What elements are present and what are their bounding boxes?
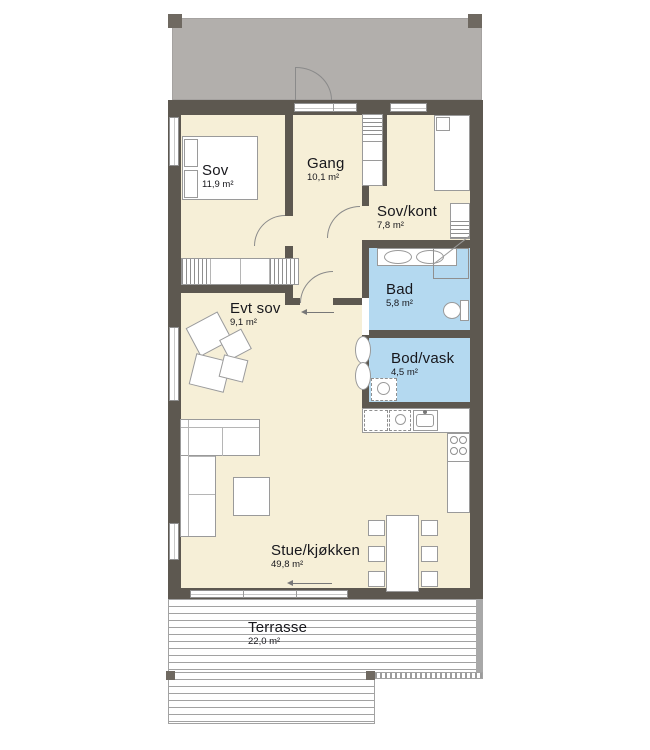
pillow-icon bbox=[436, 117, 450, 131]
washbasin-icon bbox=[384, 250, 412, 264]
wardrobe-section bbox=[182, 259, 211, 284]
room-name: Evt sov bbox=[230, 300, 281, 317]
sofa-backrest-line bbox=[181, 427, 259, 428]
desk-hatch bbox=[451, 221, 469, 238]
terrace-post bbox=[166, 671, 175, 680]
floor-plan: Sov 11,9 m² Gang 10,1 m² Sov/kont 7,8 m²… bbox=[0, 0, 650, 750]
room-name: Sov bbox=[202, 162, 234, 179]
sliding-door-arrow-head bbox=[301, 309, 307, 315]
terrace-deck-upper bbox=[168, 599, 483, 673]
sofa-backrest-line bbox=[188, 420, 189, 536]
room-name: Bad bbox=[386, 281, 413, 298]
wardrobe-section bbox=[211, 259, 240, 284]
room-label-gang: Gang 10,1 m² bbox=[307, 155, 345, 184]
toilet-tank-icon bbox=[460, 300, 469, 321]
room-area: 22,0 m² bbox=[248, 637, 307, 648]
shelf-hatch bbox=[363, 116, 382, 135]
room-name: Bod/vask bbox=[391, 350, 454, 367]
window-mullion bbox=[243, 590, 244, 598]
room-area: 4,5 m² bbox=[391, 368, 454, 379]
sofa-cushion-line bbox=[188, 494, 215, 495]
toilet-bowl-icon bbox=[443, 302, 461, 319]
window bbox=[169, 523, 179, 560]
appliance-knob bbox=[395, 414, 406, 425]
window-mullion bbox=[296, 590, 297, 598]
pillow-icon bbox=[184, 139, 198, 167]
room-name: Sov/kont bbox=[377, 203, 437, 220]
sliding-door-icon bbox=[355, 362, 371, 390]
burner-icon bbox=[450, 436, 458, 444]
dishwasher-icon bbox=[364, 410, 388, 431]
window bbox=[169, 117, 179, 166]
burner-icon bbox=[459, 436, 467, 444]
room-label-sovkont: Sov/kont 7,8 m² bbox=[377, 203, 437, 232]
window bbox=[390, 103, 427, 112]
wall-sov-gang bbox=[285, 113, 293, 216]
room-name: Stue/kjøkken bbox=[271, 542, 360, 559]
window bbox=[294, 103, 357, 112]
entrance-door-leaf bbox=[295, 67, 296, 101]
dining-table-icon bbox=[386, 515, 419, 592]
washing-machine-drum bbox=[377, 382, 390, 395]
wardrobe-icon bbox=[181, 258, 299, 285]
shelf-line bbox=[362, 141, 383, 142]
window-mullion bbox=[333, 103, 334, 112]
dining-chair-icon bbox=[368, 546, 385, 562]
wall-bad-west bbox=[362, 248, 369, 298]
wardrobe-section bbox=[241, 259, 270, 284]
bad-door-opening bbox=[362, 298, 369, 335]
terrace-edge bbox=[476, 599, 483, 673]
burner-icon bbox=[459, 447, 467, 455]
room-area: 11,9 m² bbox=[202, 180, 234, 191]
dining-chair-icon bbox=[421, 520, 438, 536]
dining-chair-icon bbox=[421, 571, 438, 587]
room-name: Gang bbox=[307, 155, 345, 172]
room-area: 7,8 m² bbox=[377, 221, 437, 232]
wall-sov-evtsov bbox=[168, 285, 293, 293]
wall-gang-south bbox=[285, 298, 300, 305]
terrace-step-edge bbox=[374, 672, 483, 679]
sofa-cushion-line bbox=[222, 428, 223, 456]
terrace-deck-lower bbox=[168, 679, 375, 724]
shelf-line bbox=[362, 160, 383, 161]
dining-chair-icon bbox=[368, 571, 385, 587]
room-area: 9,1 m² bbox=[230, 318, 281, 329]
room-name: Terrasse bbox=[248, 619, 307, 636]
shower-icon bbox=[433, 248, 469, 279]
faucet-icon bbox=[423, 410, 427, 414]
sliding-door-arrow bbox=[292, 583, 332, 584]
sliding-door-arrow-head bbox=[287, 580, 293, 586]
wardrobe-section bbox=[270, 259, 298, 284]
terrace-post bbox=[366, 671, 375, 680]
room-label-bad: Bad 5,8 m² bbox=[386, 281, 413, 310]
carport-post bbox=[468, 14, 482, 28]
sink-basin bbox=[416, 414, 434, 427]
window bbox=[169, 327, 179, 401]
sofa-cushion-line bbox=[188, 456, 215, 457]
room-label-bodvask: Bod/vask 4,5 m² bbox=[391, 350, 454, 379]
room-label-terrasse: Terrasse 22,0 m² bbox=[248, 619, 307, 648]
dining-chair-icon bbox=[421, 546, 438, 562]
room-area: 49,8 m² bbox=[271, 560, 360, 571]
room-area: 10,1 m² bbox=[307, 173, 345, 184]
carport-post bbox=[168, 14, 182, 28]
wall-bad-bod bbox=[369, 330, 483, 338]
coffee-table-icon bbox=[233, 477, 270, 516]
wall-right bbox=[470, 100, 483, 600]
pillow-icon bbox=[184, 170, 198, 198]
sliding-door-icon bbox=[355, 336, 371, 364]
wall-sovkont-bad bbox=[362, 240, 483, 248]
window bbox=[190, 590, 348, 598]
sliding-door-arrow bbox=[306, 312, 334, 313]
room-label-sov: Sov 11,9 m² bbox=[202, 162, 234, 191]
room-area: 5,8 m² bbox=[386, 299, 413, 310]
sofa-icon bbox=[180, 419, 260, 456]
wall-gang-sovkont bbox=[362, 186, 369, 206]
room-label-evtsov: Evt sov 9,1 m² bbox=[230, 300, 281, 329]
room-label-stuekjokken: Stue/kjøkken 49,8 m² bbox=[271, 542, 360, 571]
burner-icon bbox=[450, 447, 458, 455]
dining-chair-icon bbox=[368, 520, 385, 536]
